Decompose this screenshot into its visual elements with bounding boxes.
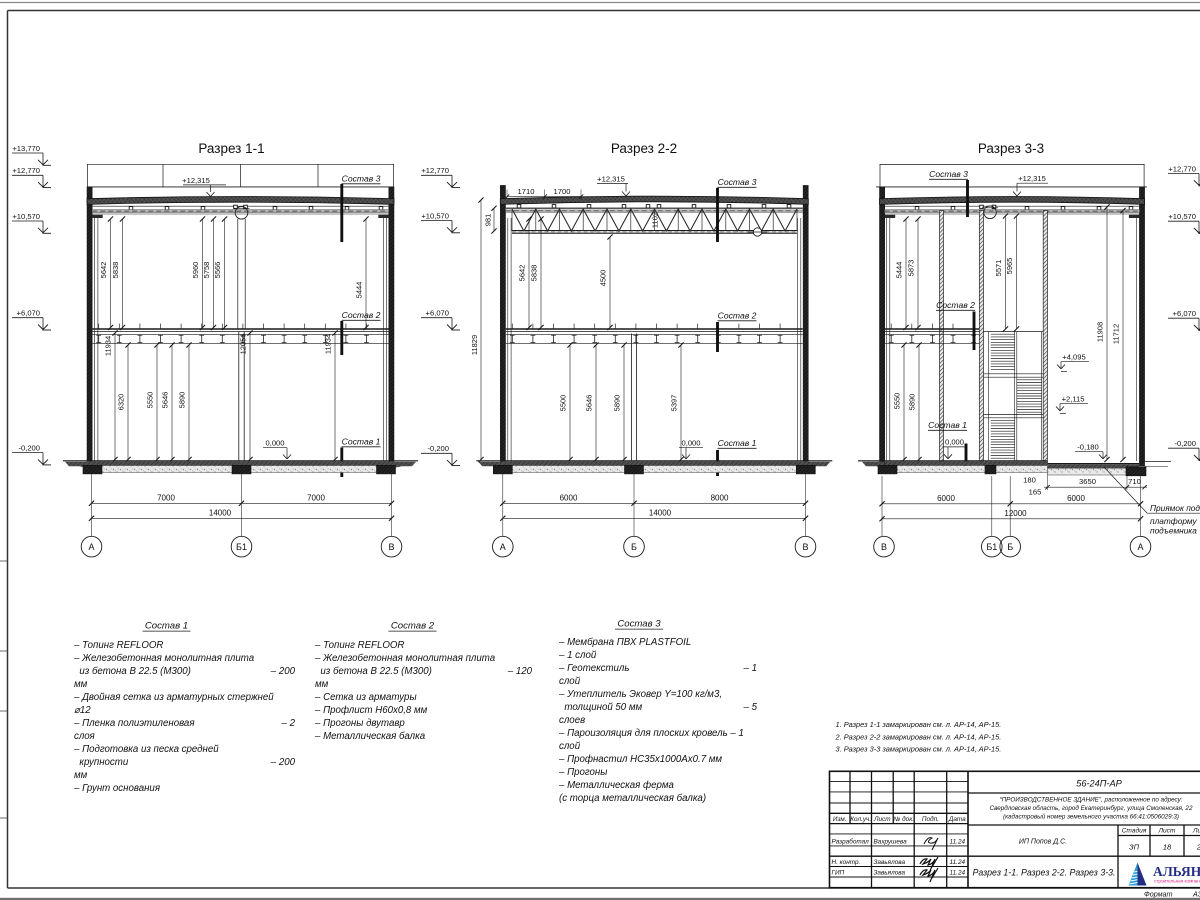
svg-text:6320: 6320 (117, 394, 126, 411)
svg-text:Б1: Б1 (236, 542, 247, 552)
svg-text:– Геотекстиль: – Геотекстиль (558, 663, 629, 674)
svg-text:– Топинг REFLOOR: – Топинг REFLOOR (73, 640, 163, 651)
svg-text:(кадастровый номер земельного: (кадастровый номер земельного участка 66… (1003, 813, 1179, 821)
svg-text:5873: 5873 (907, 260, 916, 277)
svg-text:– Подготовка из песка средней: – Подготовка из песка средней (73, 744, 219, 755)
svg-text:+12,770: +12,770 (421, 166, 449, 175)
svg-text:7000: 7000 (307, 494, 325, 503)
svg-text:Разработал: Разработал (832, 838, 870, 846)
svg-text:– Металлическая балка: – Металлическая балка (314, 731, 426, 742)
svg-text:+6,070: +6,070 (426, 309, 449, 318)
svg-text:+12,770: +12,770 (1168, 164, 1196, 173)
svg-text:Состав 2: Состав 2 (718, 311, 757, 321)
svg-text:710: 710 (1128, 477, 1141, 486)
svg-text:Разрез 3-3: Разрез 3-3 (978, 141, 1044, 156)
svg-text:3. Разрез 3-3 замаркирован см.: 3. Разрез 3-3 замаркирован см. л. АР-14,… (836, 745, 1002, 754)
svg-text:мм: мм (315, 679, 329, 690)
svg-text:Состав 2: Состав 2 (342, 310, 381, 320)
svg-text:№ док.: № док. (893, 815, 914, 823)
svg-text:Лист: Лист (1158, 828, 1176, 835)
svg-text:подъемника: подъемника (1150, 526, 1197, 536)
svg-text:– Двойная сетка из арматурных: – Двойная сетка из арматурных стержней (73, 692, 274, 703)
svg-text:5758: 5758 (202, 262, 211, 279)
svg-text:– Профлист Н60х0,8 мм: – Профлист Н60х0,8 мм (314, 705, 428, 716)
svg-text:0,000: 0,000 (265, 439, 284, 448)
svg-text:Состав 1: Состав 1 (718, 438, 757, 448)
svg-text:Приямок под: Приямок под (1150, 503, 1200, 513)
svg-text:– Прогоны двутавр: – Прогоны двутавр (314, 718, 405, 729)
svg-text:5444: 5444 (895, 262, 904, 279)
svg-text:6000: 6000 (937, 494, 955, 503)
svg-text:– 1: – 1 (743, 663, 757, 674)
svg-text:– 200: – 200 (270, 666, 296, 677)
svg-text:В: В (881, 542, 887, 552)
svg-text:из бетона В 22.5 (М300): из бетона В 22.5 (М300) (315, 666, 432, 677)
svg-text:2. Разрез 2-2 замаркирован см.: 2. Разрез 2-2 замаркирован см. л. АР-14,… (835, 733, 1002, 742)
svg-text:-0,180: -0,180 (1077, 443, 1099, 452)
svg-text:+10,570: +10,570 (1168, 212, 1196, 221)
svg-text:1102: 1102 (651, 212, 660, 228)
svg-text:-0,200: -0,200 (18, 443, 40, 452)
svg-text:Разрез 1-1: Разрез 1-1 (198, 141, 264, 156)
svg-text:5566: 5566 (213, 262, 222, 279)
svg-text:5642: 5642 (99, 262, 108, 279)
svg-text:+6,070: +6,070 (17, 309, 40, 318)
svg-text:– Железобетонная монолитная п: – Железобетонная монолитная плита (314, 653, 496, 664)
svg-text:6000: 6000 (1067, 494, 1085, 503)
svg-text:12056: 12056 (239, 334, 248, 355)
svg-text:165: 165 (1029, 488, 1042, 497)
svg-text:5890: 5890 (908, 394, 917, 411)
svg-text:5571: 5571 (994, 260, 1003, 277)
svg-text:11712: 11712 (1112, 324, 1121, 344)
svg-text:Стадия: Стадия (1122, 827, 1147, 835)
svg-text:1710: 1710 (518, 187, 535, 196)
svg-text:4500: 4500 (599, 270, 608, 287)
svg-text:12000: 12000 (1004, 509, 1027, 518)
svg-text:5500: 5500 (559, 395, 568, 412)
svg-text:7000: 7000 (157, 494, 175, 503)
svg-text:– Металлическая ферма: – Металлическая ферма (558, 780, 674, 791)
svg-text:5890: 5890 (613, 395, 622, 412)
svg-text:Б1: Б1 (986, 542, 997, 552)
svg-text:Состав 1: Состав 1 (342, 437, 381, 447)
svg-text:ЗП: ЗП (1129, 843, 1140, 852)
svg-text:– Пленка полиэтиленовая: – Пленка полиэтиленовая (73, 718, 195, 729)
svg-text:– Профнастил НС35х1000Ах0.7 мм: – Профнастил НС35х1000Ах0.7 мм (558, 754, 722, 765)
svg-text:5397: 5397 (670, 395, 679, 412)
svg-text:– 2: – 2 (281, 718, 296, 729)
svg-text:981: 981 (484, 214, 493, 227)
svg-text:5965: 5965 (1005, 258, 1014, 275)
svg-text:+10,570: +10,570 (12, 212, 40, 221)
svg-text:Б: Б (631, 542, 637, 552)
svg-text:А: А (500, 542, 506, 552)
svg-text:+4,095: +4,095 (1062, 353, 1085, 362)
svg-text:Вахрушева: Вахрушева (874, 839, 908, 846)
svg-text:Состав 3: Состав 3 (718, 177, 757, 187)
svg-text:56-24П-АР: 56-24П-АР (1076, 779, 1122, 789)
svg-text:+6,070: +6,070 (1173, 309, 1196, 318)
svg-text:– Железобетонная монолитная п: – Железобетонная монолитная плита (73, 653, 255, 664)
svg-text:11829: 11829 (470, 335, 479, 355)
svg-text:– Прогоны: – Прогоны (558, 767, 607, 778)
svg-text:⌀12: ⌀12 (74, 705, 91, 716)
svg-text:слоев: слоев (559, 715, 585, 726)
svg-text:-0,200: -0,200 (427, 444, 449, 453)
svg-text:8000: 8000 (711, 494, 729, 503)
svg-text:+10,570: +10,570 (421, 211, 449, 220)
svg-text:Кол.уч.: Кол.уч. (850, 816, 871, 823)
svg-text:слоя: слоя (74, 731, 95, 742)
svg-text:толщиной 50 мм: толщиной 50 мм (559, 702, 643, 713)
svg-text:Лист: Лист (873, 816, 891, 823)
svg-text:+12,315: +12,315 (1018, 174, 1046, 183)
svg-text:А3: А3 (1192, 890, 1200, 899)
svg-text:Б: Б (1007, 542, 1013, 552)
svg-text:слой: слой (559, 741, 581, 752)
svg-text:– Сетка из арматуры: – Сетка из арматуры (314, 692, 417, 703)
svg-text:– Мембрана ПВХ PLASTFOIL: – Мембрана ПВХ PLASTFOIL (558, 637, 691, 648)
svg-text:Н. контр.: Н. контр. (832, 859, 861, 866)
svg-text:– 5: – 5 (743, 702, 758, 713)
svg-text:платформу: платформу (1150, 516, 1198, 526)
svg-text:5642: 5642 (518, 265, 527, 282)
svg-text:+12,770: +12,770 (12, 166, 40, 175)
svg-text:11934: 11934 (324, 334, 333, 354)
svg-text:Состав 1: Состав 1 (145, 621, 188, 632)
svg-text:Состав 2: Состав 2 (391, 621, 435, 632)
svg-text:Состав 1: Состав 1 (928, 420, 967, 430)
svg-text:6000: 6000 (560, 494, 578, 503)
svg-text:ИП Попов Д.С.: ИП Попов Д.С. (1019, 839, 1067, 846)
svg-text:2: 2 (1196, 843, 1200, 852)
svg-text:Листов: Листов (1192, 828, 1200, 835)
svg-text:мм: мм (74, 679, 88, 690)
svg-text:0,000: 0,000 (945, 438, 964, 447)
svg-text:– Грунт основания: – Грунт основания (73, 783, 160, 794)
svg-text:5890: 5890 (178, 392, 187, 409)
svg-text:Разрез 2-2: Разрез 2-2 (611, 141, 677, 156)
svg-text:В: В (802, 542, 808, 552)
svg-text:Завьялова: Завьялова (874, 859, 906, 866)
svg-text:5646: 5646 (585, 395, 594, 412)
svg-text:0,000: 0,000 (681, 439, 700, 448)
svg-text:5838: 5838 (111, 262, 120, 279)
svg-text:5838: 5838 (530, 265, 539, 282)
svg-text:5550: 5550 (146, 392, 155, 409)
svg-text:– 120: – 120 (507, 666, 533, 677)
svg-text:АЛЬЯНС: АЛЬЯНС (1153, 864, 1200, 879)
svg-text:мм: мм (74, 770, 88, 781)
svg-text:11908: 11908 (1096, 322, 1105, 342)
svg-text:Свердловская область, город Ек: Свердловская область, город Екатеринбург… (990, 804, 1193, 812)
svg-text:18: 18 (1163, 843, 1172, 852)
svg-text:180: 180 (1023, 476, 1036, 485)
svg-text:– Утеплитель Эковер Y=100 кг/м: – Утеплитель Эковер Y=100 кг/м3, (558, 689, 722, 700)
svg-text:1. Разрез 1-1 замаркирован см.: 1. Разрез 1-1 замаркирован см. л. АР-14,… (836, 720, 1002, 729)
svg-text:14000: 14000 (649, 509, 672, 518)
svg-text:11.24: 11.24 (950, 859, 966, 866)
svg-text:1700: 1700 (554, 187, 571, 196)
svg-text:+12,315: +12,315 (597, 175, 625, 184)
svg-text:– Пароизоляция для плоских кро: – Пароизоляция для плоских кровель – 1 (558, 728, 744, 739)
svg-text:14000: 14000 (209, 509, 232, 518)
svg-text:+2,115: +2,115 (1062, 395, 1085, 404)
svg-text:Изм.: Изм. (833, 816, 847, 823)
svg-text:5550: 5550 (893, 393, 902, 410)
svg-text:5960: 5960 (191, 262, 200, 279)
svg-text:11.24: 11.24 (950, 870, 966, 877)
svg-text:Разрез 1-1. Разрез 2-2. Разрез: Разрез 1-1. Разрез 2-2. Разрез 3-3. (973, 868, 1116, 878)
svg-text:+12,315: +12,315 (182, 176, 210, 185)
svg-text:А: А (88, 542, 94, 552)
svg-text:слой: слой (559, 676, 581, 687)
svg-text:-0,200: -0,200 (1174, 439, 1196, 448)
svg-text:ГИП: ГИП (832, 870, 845, 877)
svg-text:Формат: Формат (1144, 890, 1173, 899)
svg-text:11.24: 11.24 (950, 839, 966, 846)
svg-text:5444: 5444 (355, 282, 364, 299)
svg-text:Состав 3: Состав 3 (342, 174, 381, 184)
svg-text:– Топинг REFLOOR: – Топинг REFLOOR (314, 640, 404, 651)
svg-text:Состав 3: Состав 3 (617, 619, 661, 630)
svg-text:В: В (388, 542, 394, 552)
svg-text:– 1 слой: – 1 слой (558, 650, 597, 661)
svg-text:крупности: крупности (74, 757, 129, 768)
svg-text:Завьялова: Завьялова (874, 870, 906, 877)
svg-text:+13,770: +13,770 (12, 144, 40, 153)
svg-text:Подп.: Подп. (922, 815, 939, 823)
svg-text:Состав 2: Состав 2 (936, 300, 975, 310)
svg-text:А: А (1137, 542, 1143, 552)
svg-text:из бетона В 22.5 (М300): из бетона В 22.5 (М300) (74, 666, 191, 677)
svg-text:11934: 11934 (104, 336, 113, 356)
svg-text:(с торца металлическая балка): (с торца металлическая балка) (559, 793, 706, 804)
svg-text:3650: 3650 (1079, 477, 1096, 486)
svg-text:строительная компания: строительная компания (1154, 879, 1200, 884)
svg-text:Дата: Дата (948, 816, 966, 823)
svg-text:Состав 3: Состав 3 (929, 169, 968, 179)
svg-text:“ПРОИЗВОДСТВЕННОЕ ЗДАНИЕ”, рас: “ПРОИЗВОДСТВЕННОЕ ЗДАНИЕ”, расположенное… (1000, 796, 1183, 804)
svg-text:5646: 5646 (161, 392, 170, 409)
svg-text:– 200: – 200 (270, 757, 296, 768)
